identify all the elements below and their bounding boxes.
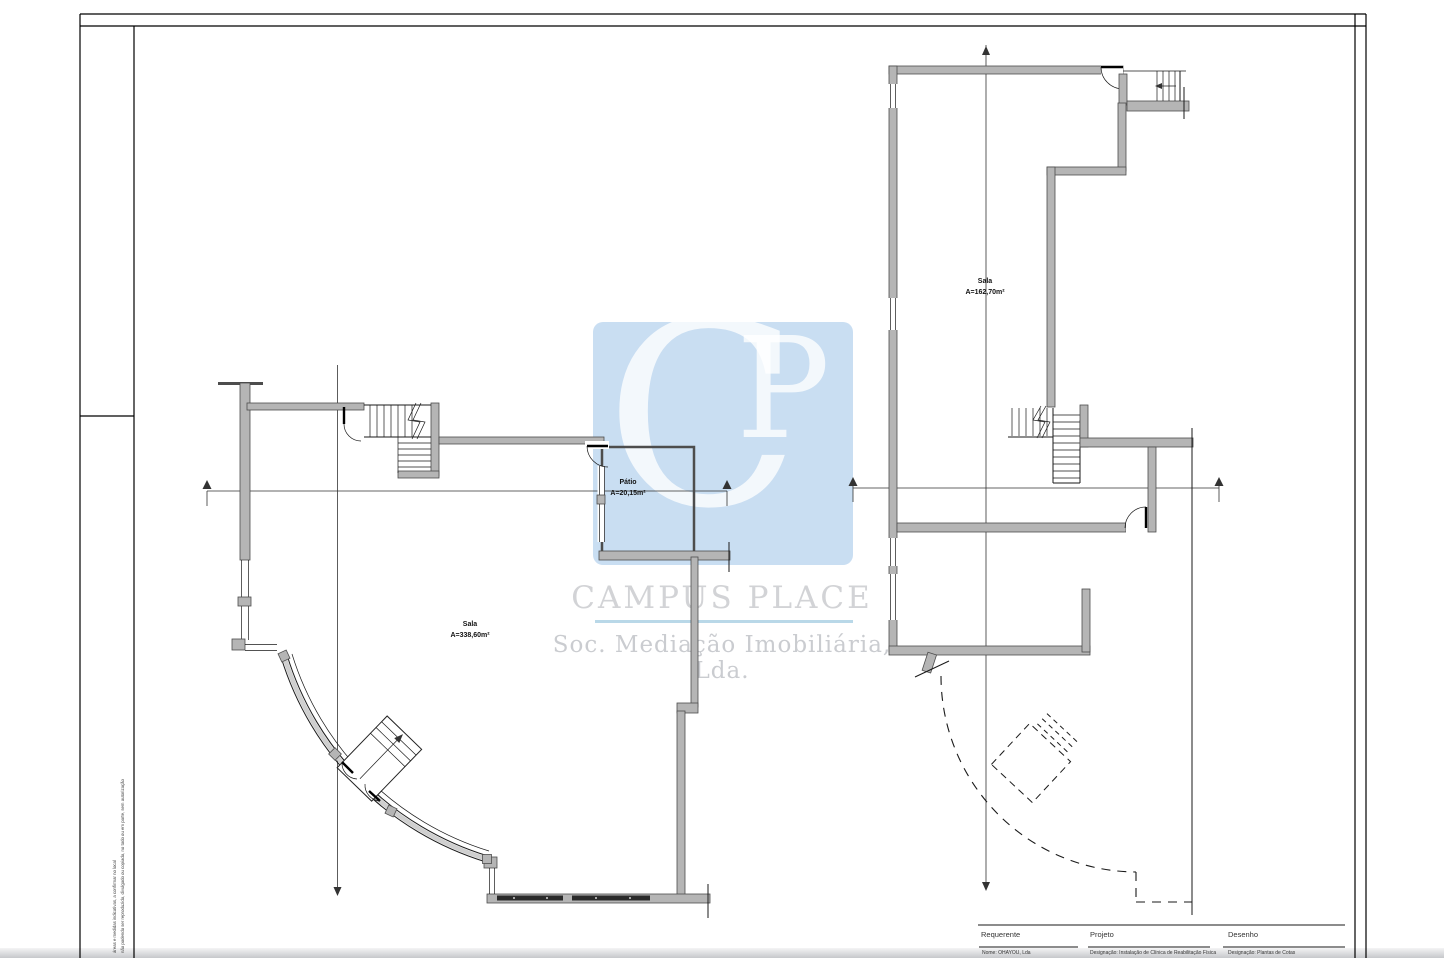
margin-note-line2: não podendo ser reproduzido, divulgado o…	[120, 779, 125, 953]
mid-door	[1125, 507, 1147, 533]
title-block-projeto-value: Designação: Instalação de Clínica de Rea…	[1090, 950, 1216, 956]
room-label-patio: Pátio A=20,15m²	[610, 478, 645, 499]
right-plan-walls	[889, 65, 1190, 652]
margin-note-line1: áreas e medidas indicativas, a confirmar…	[112, 860, 117, 953]
title-block-rules	[978, 925, 1345, 947]
room-label-left-sala: Sala A=338,60m²	[450, 620, 489, 641]
sheet-frame	[80, 14, 1366, 958]
room-area: A=338,60m²	[450, 632, 489, 639]
title-block-desenho-value: Designação: Plantas de Cotas	[1228, 950, 1295, 956]
left-plan	[203, 365, 732, 918]
patio-room	[585, 441, 730, 572]
room-name: Pátio	[619, 479, 636, 486]
entrance-steps	[337, 716, 422, 801]
title-block-projeto-label: Projeto	[1090, 930, 1114, 939]
title-block-requerente-value: Nome: OHAYOU, Lda	[982, 950, 1031, 956]
room-area: A=162,70m²	[965, 289, 1004, 296]
left-plan-top-stair	[247, 403, 604, 478]
drawing-sheet: C P CAMPUS PLACE Soc. Mediação Imobiliár…	[0, 0, 1444, 958]
middle-stair	[1008, 405, 1088, 483]
left-plan-west-wall	[218, 382, 277, 651]
room-name: Sala	[978, 278, 992, 285]
right-plan	[849, 45, 1224, 915]
room-name: Sala	[463, 621, 477, 628]
title-block-requerente-label: Requerente	[981, 930, 1020, 939]
left-plan-south-wall	[484, 857, 710, 918]
floor-plan-linework: .w{fill:#b5b5b5;stroke:#4d4d4d;stroke-wi…	[0, 0, 1444, 958]
room-area: A=20,15m²	[610, 490, 645, 497]
mid-walls	[889, 438, 1193, 655]
top-right-stair	[1155, 71, 1180, 101]
room-label-right-sala: Sala A=162,70m²	[965, 277, 1004, 298]
title-block-desenho-label: Desenho	[1228, 930, 1258, 939]
right-plan-centerlines	[849, 45, 1224, 891]
left-plan-east-wall	[677, 557, 698, 896]
